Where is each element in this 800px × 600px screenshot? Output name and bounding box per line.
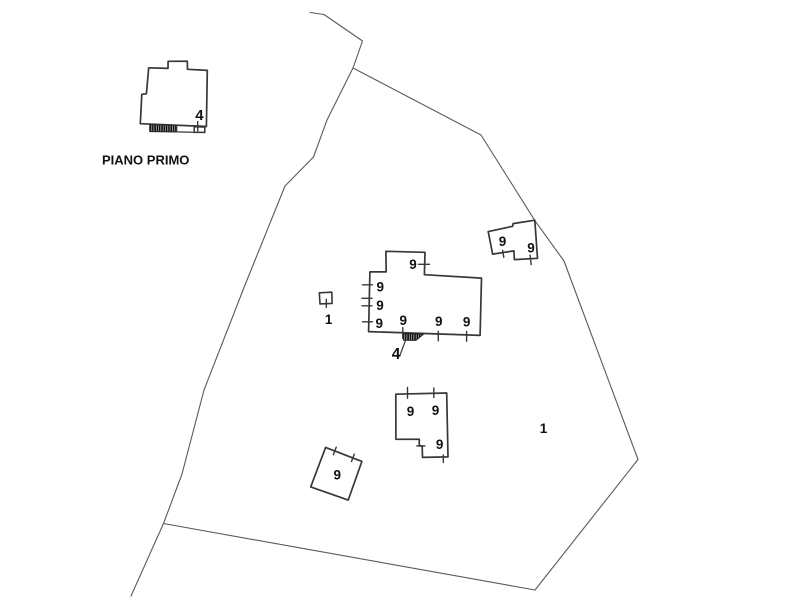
svg-text:9: 9: [376, 316, 384, 331]
svg-text:PIANO PRIMO: PIANO PRIMO: [102, 153, 189, 168]
svg-text:1: 1: [325, 312, 333, 327]
svg-text:9: 9: [377, 280, 385, 295]
svg-text:9: 9: [436, 437, 444, 452]
svg-text:9: 9: [376, 298, 384, 313]
svg-text:1: 1: [540, 421, 548, 436]
svg-text:9: 9: [499, 234, 507, 249]
svg-text:4: 4: [392, 346, 401, 363]
svg-text:4: 4: [195, 107, 204, 124]
svg-text:9: 9: [432, 403, 440, 418]
svg-text:9: 9: [399, 313, 407, 328]
svg-text:9: 9: [435, 314, 443, 329]
svg-text:9: 9: [333, 467, 341, 482]
svg-text:9: 9: [407, 404, 415, 419]
svg-text:9: 9: [527, 240, 535, 255]
svg-text:9: 9: [409, 257, 417, 272]
svg-text:9: 9: [463, 315, 471, 330]
